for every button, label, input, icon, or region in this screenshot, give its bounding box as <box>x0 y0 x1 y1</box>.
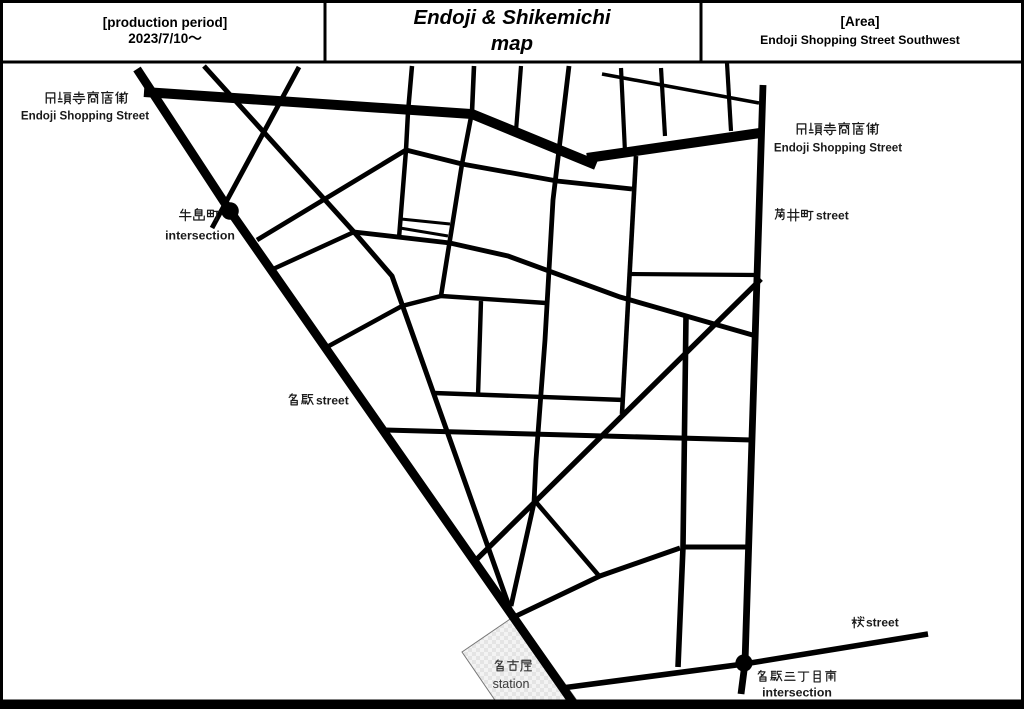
svg-text:intersection: intersection <box>762 686 832 700</box>
svg-text:street: street <box>866 616 899 630</box>
svg-text:Endoji Shopping Street: Endoji Shopping Street <box>21 110 149 123</box>
svg-text:Endoji & Shikemichi: Endoji & Shikemichi <box>413 6 611 29</box>
svg-text:Endoji Shopping Street Southwe: Endoji Shopping Street Southwest <box>760 33 960 47</box>
svg-text:Endoji Shopping Street: Endoji Shopping Street <box>774 142 902 155</box>
svg-text:[production period]: [production period] <box>103 15 227 30</box>
svg-text:2023/7/10～: 2023/7/10～ <box>128 31 202 46</box>
svg-text:map: map <box>491 32 533 55</box>
svg-text:street: street <box>316 394 349 408</box>
svg-text:street: street <box>816 209 849 223</box>
svg-text:intersection: intersection <box>165 229 235 243</box>
svg-text:[Area]: [Area] <box>840 14 879 29</box>
svg-text:station: station <box>493 677 530 691</box>
